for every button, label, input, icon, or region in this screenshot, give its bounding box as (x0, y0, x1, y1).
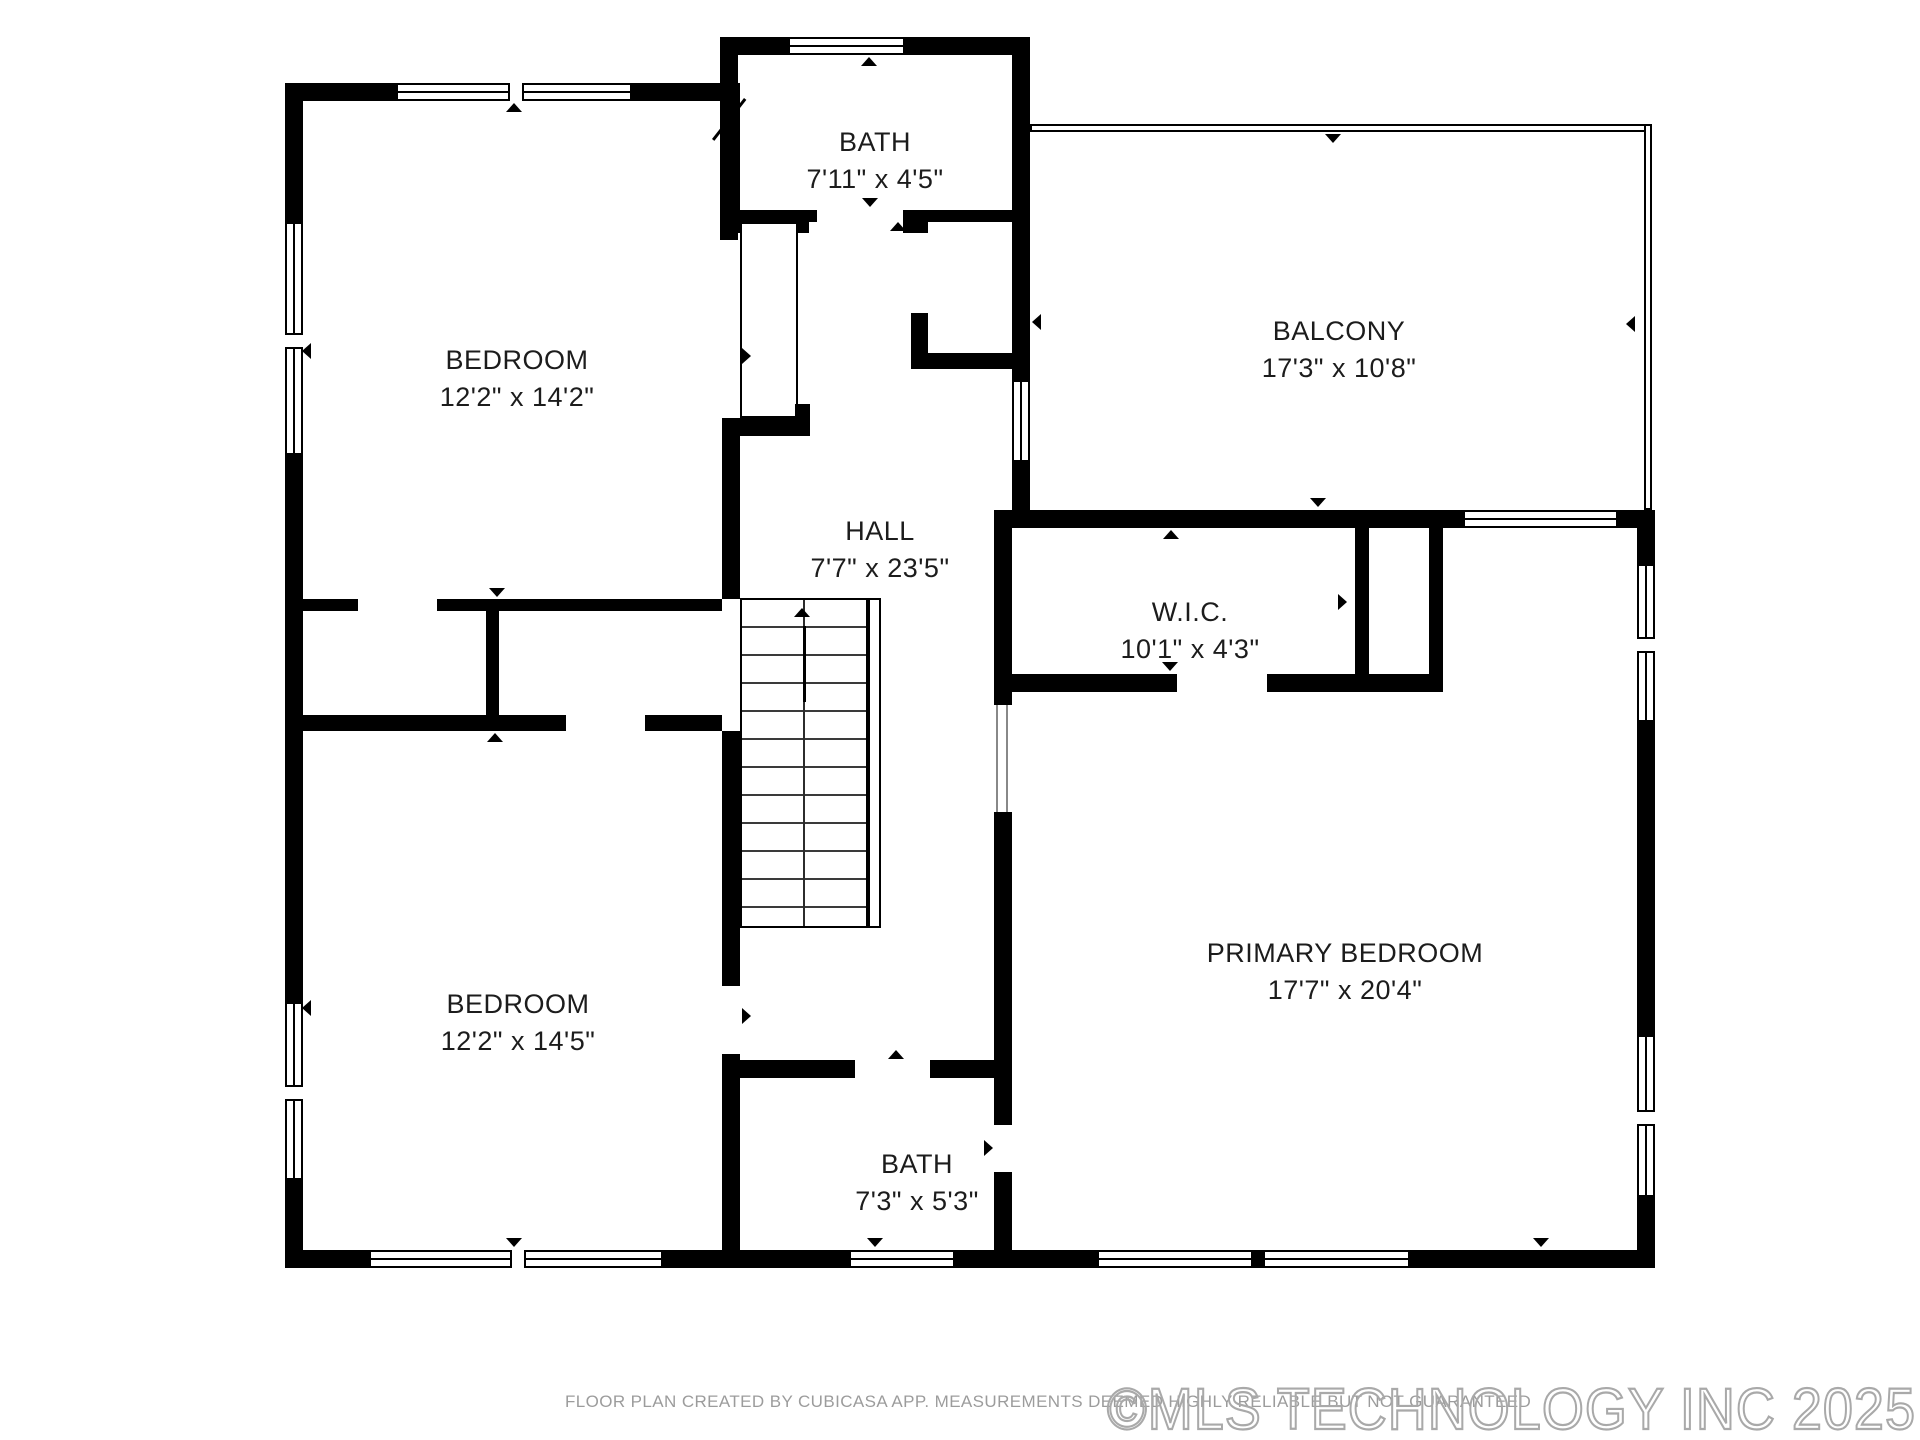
room-dims: 12'2" x 14'5" (441, 1023, 596, 1060)
window (285, 222, 303, 455)
wall (720, 37, 788, 55)
wall (730, 210, 817, 222)
wall (994, 522, 1012, 705)
void-niche (740, 222, 798, 418)
window (1463, 510, 1618, 528)
room-dims: 7'3" x 5'3" (855, 1183, 979, 1220)
window-arrow-icon (861, 57, 877, 66)
wall (1637, 1197, 1655, 1268)
door-arrow-icon (487, 733, 503, 742)
wall (486, 599, 499, 731)
wall (1637, 510, 1655, 564)
room-dims: 12'2" x 14'2" (440, 379, 595, 416)
wall (1429, 528, 1443, 692)
wall (663, 1250, 849, 1268)
balcony-rail (1644, 124, 1652, 510)
balcony-door (1012, 380, 1030, 462)
window-arrow-icon (302, 1000, 311, 1016)
wall (303, 599, 358, 611)
wall (730, 418, 810, 436)
door-arrow-icon (984, 1140, 993, 1156)
wall (795, 404, 810, 418)
window (849, 1250, 955, 1268)
wall (994, 510, 1463, 528)
door-arrow-icon (742, 1008, 751, 1024)
window-arrow-icon (506, 1238, 522, 1247)
room-name: W.I.C. (1120, 594, 1259, 631)
watermark-text: ©MLS TECHNOLOGY INC 2025 (1107, 1376, 1916, 1440)
floor-plan: BATH 7'11" x 4'5" BEDROOM 12'2" x 14'2" … (0, 0, 1920, 1440)
door-arrow-icon (998, 594, 1007, 610)
wall (994, 1172, 1012, 1250)
wall (994, 674, 1177, 692)
window (1637, 564, 1655, 722)
room-dims: 17'3" x 10'8" (1262, 350, 1417, 387)
door-arrow-icon (1310, 498, 1326, 507)
door-arrow-icon (888, 1050, 904, 1059)
wall (722, 418, 740, 599)
window (1263, 1250, 1410, 1268)
room-name: PRIMARY BEDROOM (1207, 935, 1484, 972)
wall (722, 731, 740, 986)
window (285, 1002, 303, 1180)
door-arrow-icon (862, 198, 878, 207)
door-arrow-icon (1032, 314, 1041, 330)
window (1097, 1250, 1253, 1268)
wall (911, 353, 1030, 369)
door-opening (996, 705, 1008, 812)
wall (1355, 528, 1369, 674)
door-arrow-icon (1163, 530, 1179, 539)
wall (903, 210, 1012, 222)
window (369, 1250, 663, 1268)
room-label-hall: HALL 7'7" x 23'5" (810, 513, 949, 587)
wall (722, 83, 740, 233)
door-arrow-icon (1325, 134, 1341, 143)
wall (722, 1060, 855, 1078)
window (396, 83, 632, 101)
wall (645, 715, 722, 731)
room-dims: 17'7" x 20'4" (1207, 972, 1484, 1009)
window-arrow-icon (302, 343, 311, 359)
room-dims: 7'7" x 23'5" (810, 550, 949, 587)
wall (955, 1250, 1097, 1268)
wall (903, 222, 928, 233)
window-arrow-icon (506, 103, 522, 112)
wall (1012, 37, 1030, 380)
room-label-wic: W.I.C. 10'1" x 4'3" (1120, 594, 1259, 668)
wall (1637, 722, 1655, 1035)
room-name: BEDROOM (441, 986, 596, 1023)
wall (1267, 674, 1443, 692)
room-label-balcony: BALCONY 17'3" x 10'8" (1262, 313, 1417, 387)
wall (285, 83, 303, 222)
wall (285, 1250, 369, 1268)
wall (797, 222, 809, 233)
room-dims: 7'11" x 4'5" (806, 161, 943, 198)
wall (1410, 1250, 1655, 1268)
room-dims: 10'1" x 4'3" (1120, 631, 1259, 668)
room-name: BEDROOM (440, 342, 595, 379)
door-arrow-icon (489, 588, 505, 597)
balcony-rail (1030, 124, 1652, 132)
wall (303, 715, 566, 731)
door-arrow-icon (1626, 316, 1635, 332)
door-arrow-icon (742, 348, 751, 364)
window-arrow-icon (1533, 1238, 1549, 1247)
staircase (740, 598, 868, 928)
room-label-bath-top: BATH 7'11" x 4'5" (806, 124, 943, 198)
room-label-bedroom-bottom: BEDROOM 12'2" x 14'5" (441, 986, 596, 1060)
wall (285, 455, 303, 1002)
wall (437, 599, 722, 611)
room-name: BATH (855, 1146, 979, 1183)
room-name: BATH (806, 124, 943, 161)
wall (1253, 1250, 1263, 1268)
stairs-up-arrow-icon (794, 608, 810, 617)
room-label-bath-bottom: BATH 7'3" x 5'3" (855, 1146, 979, 1220)
wall (722, 1054, 740, 1250)
wall (930, 1060, 1012, 1078)
room-label-bedroom-top: BEDROOM 12'2" x 14'2" (440, 342, 595, 416)
room-name: HALL (810, 513, 949, 550)
door-arrow-icon (1338, 594, 1347, 610)
room-label-primary-bedroom: PRIMARY BEDROOM 17'7" x 20'4" (1207, 935, 1484, 1009)
wall (285, 83, 396, 101)
door-arrow-icon (890, 222, 906, 231)
wall (994, 812, 1012, 1125)
stair-rail (868, 598, 881, 928)
room-name: BALCONY (1262, 313, 1417, 350)
window-arrow-icon (867, 1238, 883, 1247)
window (788, 37, 905, 55)
window (1637, 1035, 1655, 1197)
